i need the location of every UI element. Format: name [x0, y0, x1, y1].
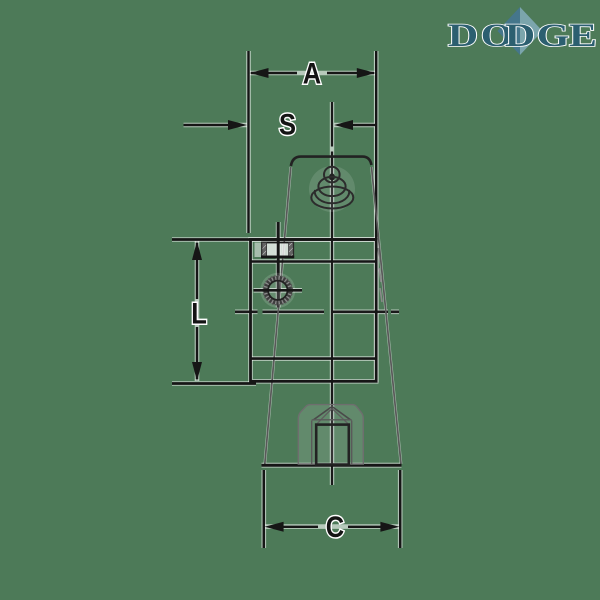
- svg-text:C: C: [326, 510, 344, 543]
- svg-text:G: G: [537, 17, 570, 54]
- svg-text:D: D: [505, 17, 535, 54]
- svg-text:L: L: [191, 297, 207, 330]
- svg-text:S: S: [279, 108, 296, 141]
- svg-text:A: A: [303, 57, 321, 90]
- svg-text:E: E: [569, 17, 597, 54]
- svg-text:D: D: [448, 17, 478, 54]
